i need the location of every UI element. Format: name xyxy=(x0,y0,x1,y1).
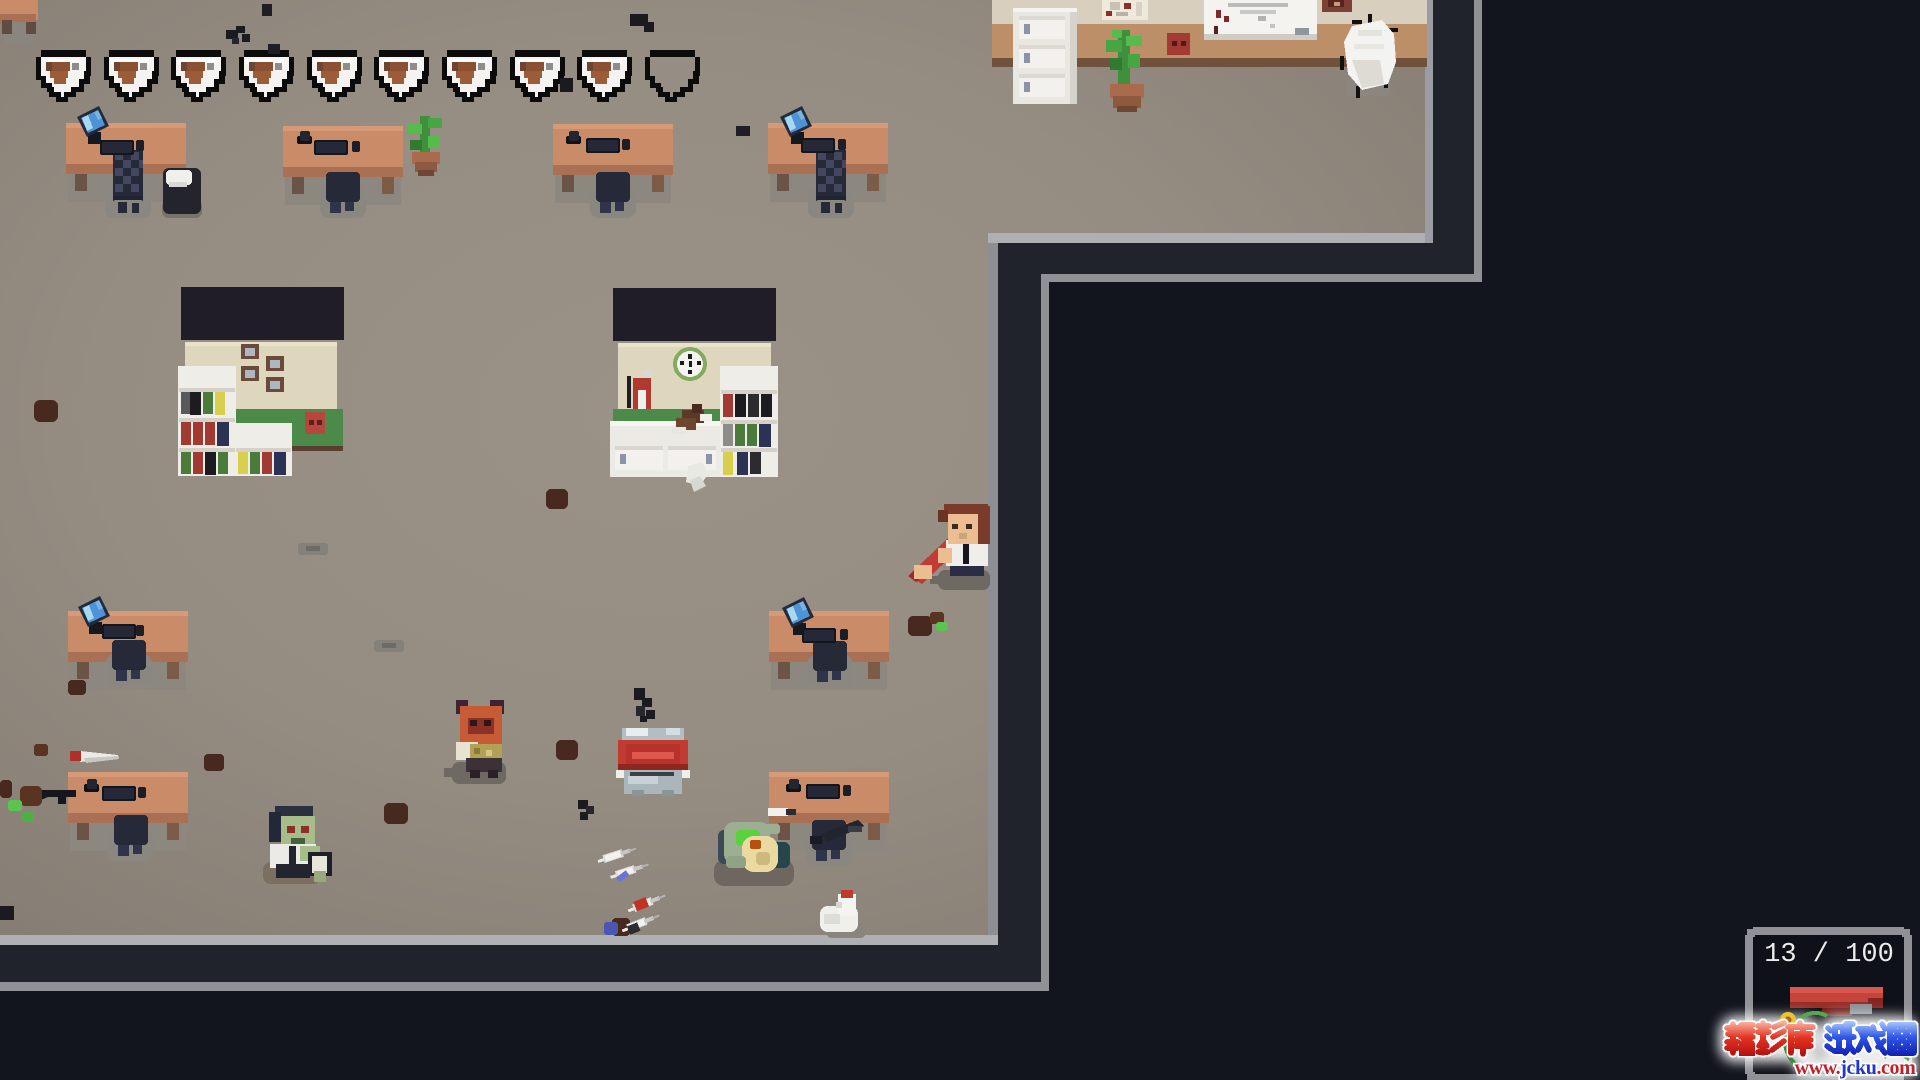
svg-text:www.jcku.com: www.jcku.com xyxy=(1795,1057,1917,1079)
svg-text:13 / 100: 13 / 100 xyxy=(1764,940,1894,970)
